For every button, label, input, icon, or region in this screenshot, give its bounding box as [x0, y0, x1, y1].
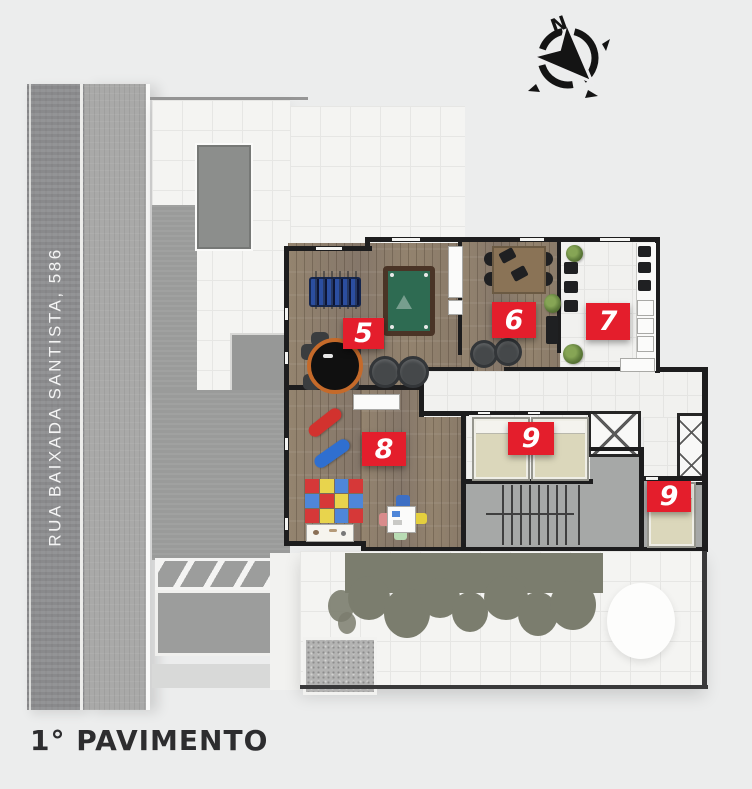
- hedge-bush: [338, 612, 356, 634]
- wall: [655, 367, 708, 372]
- stairwell: [466, 483, 641, 549]
- hedge-bush: [550, 580, 596, 630]
- curb-strip: [152, 664, 272, 688]
- plant: [563, 344, 583, 364]
- planter-box: [197, 145, 251, 249]
- side-path: [270, 553, 302, 690]
- window-gap: [285, 438, 288, 450]
- window-gap: [285, 308, 288, 320]
- compass-rose-icon: N: [522, 8, 614, 104]
- stool: [564, 262, 578, 274]
- room-badge-5: 5: [343, 318, 384, 349]
- wall: [588, 447, 643, 451]
- pool-table: [383, 266, 435, 336]
- upper-courtyard: [290, 106, 465, 248]
- plant: [544, 294, 561, 313]
- room-number: 7: [599, 306, 618, 337]
- street-name-label: RUA BAIXADA SANTISTA, 586: [46, 247, 66, 546]
- round-planter: [607, 583, 675, 659]
- foosball-rods: [309, 271, 357, 309]
- yard-slab: [230, 333, 292, 395]
- hedge-bush: [452, 592, 488, 632]
- sink: [637, 300, 654, 316]
- window-gap: [478, 412, 490, 414]
- room-badge-6: 6: [492, 302, 536, 338]
- sink: [637, 318, 654, 334]
- wall: [702, 367, 708, 552]
- window-gap: [600, 238, 630, 241]
- floor-plan-canvas: N RUA BAIXADA SANTISTA, 586: [0, 0, 752, 789]
- stool: [564, 281, 578, 293]
- counter: [620, 358, 655, 372]
- sink: [637, 336, 654, 352]
- terrace-right-wall: [702, 551, 707, 689]
- wall: [284, 246, 289, 546]
- appliance: [638, 246, 651, 257]
- cabinet: [546, 316, 558, 344]
- play-mat: [305, 479, 363, 523]
- room-badge-9-right: 9: [647, 481, 691, 512]
- page-title: 1° PAVIMENTO: [30, 724, 268, 757]
- window-gap: [392, 238, 420, 241]
- appliance: [638, 262, 651, 273]
- room-badge-8: 8: [362, 432, 406, 466]
- sidewalk: [84, 84, 150, 710]
- terrace-bottom-wall: [300, 685, 708, 689]
- yard-strip-left: [152, 205, 197, 392]
- wall-shelf: [353, 394, 400, 410]
- wall: [639, 447, 644, 552]
- pouf: [494, 338, 522, 366]
- room-number: 9: [522, 423, 541, 454]
- billiard-rack: [396, 295, 412, 309]
- kids-table: [387, 506, 416, 533]
- plant: [566, 245, 583, 262]
- stool: [564, 300, 578, 312]
- stair-guard: [578, 485, 580, 545]
- side-table: [448, 300, 463, 315]
- room-badge-7: 7: [586, 303, 630, 340]
- stair-steps: [502, 485, 572, 545]
- room-number: 5: [354, 318, 373, 349]
- room-number: 6: [505, 305, 524, 336]
- street: RUA BAIXADA SANTISTA, 586: [27, 84, 84, 710]
- toy-rug: [306, 524, 354, 542]
- window-gap: [285, 518, 288, 530]
- pouf: [397, 356, 429, 388]
- room-number: 8: [375, 434, 394, 465]
- window-gap: [316, 247, 342, 250]
- window-gap: [528, 412, 540, 414]
- stair-rail: [486, 513, 574, 515]
- sideboard: [448, 246, 463, 298]
- room-number: 9: [660, 481, 679, 512]
- window-gap: [520, 238, 544, 241]
- lower-yard: [152, 390, 290, 560]
- appliance: [638, 280, 651, 291]
- door-gap: [646, 477, 658, 480]
- window-gap: [285, 352, 288, 364]
- wall: [504, 367, 626, 371]
- room-badge-9-left: 9: [508, 422, 554, 455]
